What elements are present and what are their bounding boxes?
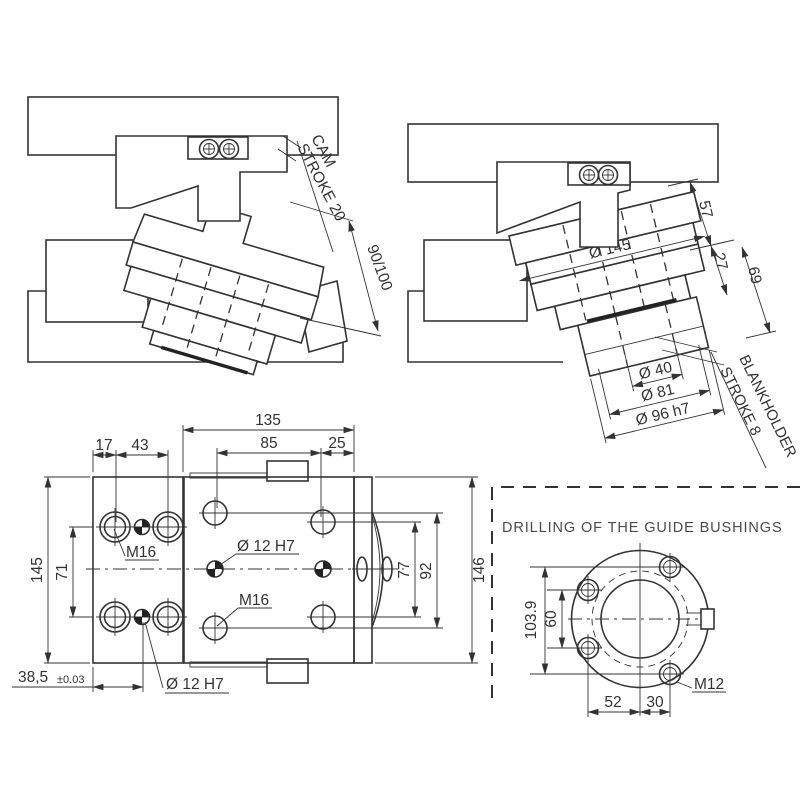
guide-bushing-hole: [149, 598, 187, 636]
drawing-page: CAM STROKE 20 90/100 Ø 145: [0, 0, 800, 800]
m16-tapped-hole: [199, 612, 231, 644]
dowel-center-label: Ø 12 H7: [237, 538, 295, 555]
h92-text: 92: [418, 562, 435, 579]
d69-text: 69: [744, 265, 764, 286]
punch-stack: Ø 145 Ø 40 Ø 81 Ø 96 h7: [509, 192, 746, 454]
h77-text: 77: [396, 561, 413, 578]
dowel-pin-hole: [315, 561, 331, 577]
h145-text: 145: [29, 557, 46, 583]
m12-tapped-hole: [574, 576, 602, 604]
h71-text: 71: [54, 563, 71, 580]
left-flange-block: [93, 477, 183, 663]
dowel-pin-hole: [135, 610, 150, 625]
travel-dim-text: 90/100: [363, 243, 395, 294]
blankholder-side-view: Ø 145 Ø 40 Ø 81 Ø 96 h7 57 27: [408, 124, 800, 468]
cam-side-view: CAM STROKE 20 90/100: [28, 97, 396, 386]
ext-line: [662, 350, 724, 365]
ext-line: [746, 331, 776, 338]
guide-bushing-hole: [96, 508, 134, 546]
base-dim-text: 38,5: [18, 669, 48, 686]
m16-left-label: M16: [126, 544, 156, 561]
plan-view: 135 85 25 17 43 145 71 77 92 146 38,5 ±0…: [12, 412, 488, 693]
v1039-text: 103.9: [523, 601, 540, 640]
top-key-tab: [267, 461, 308, 481]
detail-border: [492, 487, 800, 700]
v52-text: 52: [604, 694, 621, 711]
lower-pocket-block: [424, 240, 527, 321]
h146-text: 146: [471, 557, 488, 583]
guide-bushing-hole: [96, 598, 134, 636]
bushing-detail-view: DRILLING OF THE GUIDE BUSHINGS 103.9: [492, 487, 800, 717]
detail-title: DRILLING OF THE GUIDE BUSHINGS: [502, 520, 783, 536]
m16-tapped-hole: [199, 497, 231, 529]
technical-drawing: CAM STROKE 20 90/100 Ø 145: [0, 0, 800, 800]
w25-text: 25: [328, 435, 345, 452]
base-tol-text: ±0.03: [57, 674, 84, 686]
m12-label: M12: [694, 676, 724, 693]
d69-dim-line: [742, 247, 770, 333]
dowel-pin-hole: [207, 561, 223, 577]
w85-text: 85: [260, 435, 277, 452]
m12-tapped-hole: [656, 553, 684, 581]
w17-text: 17: [95, 437, 112, 454]
d27-text: 27: [710, 251, 730, 272]
m16-tapped-hole: [307, 506, 339, 538]
key-tab: [701, 609, 714, 629]
w135-text: 135: [255, 412, 281, 429]
v60-text: 60: [543, 610, 560, 628]
m16-body-label: M16: [239, 592, 269, 609]
dia81-text: Ø 81: [639, 381, 676, 405]
w43-text: 43: [131, 437, 148, 454]
v30-text: 30: [646, 694, 664, 711]
dowel-pin-hole: [135, 520, 150, 535]
m12-tapped-hole: [574, 634, 602, 662]
dowel-bottom-label: Ø 12 H7: [166, 676, 224, 693]
